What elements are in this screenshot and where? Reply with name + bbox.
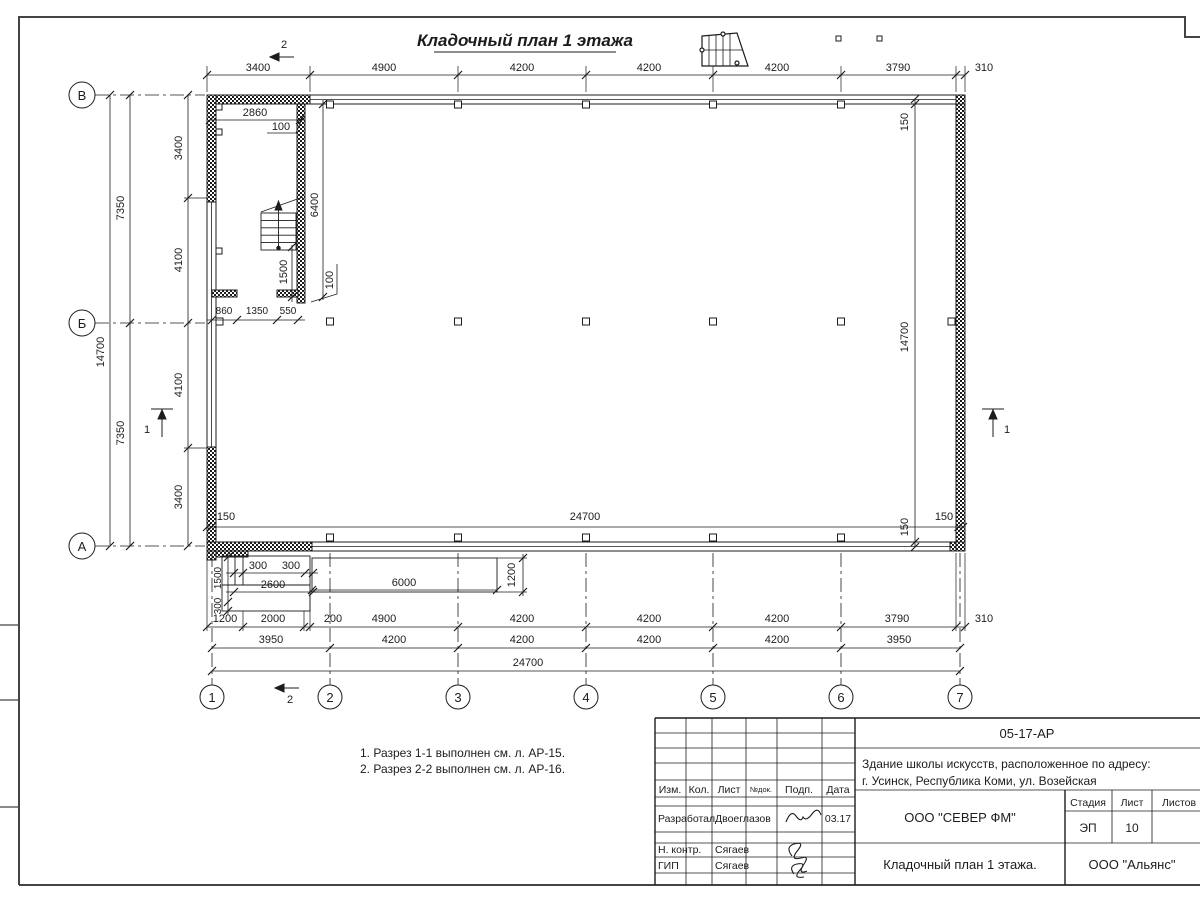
dim-label: 310 bbox=[975, 62, 993, 74]
title-block: 05-17-АР Здание школы искусств, располож… bbox=[655, 718, 1200, 885]
sheets-label: Листов bbox=[1162, 797, 1197, 809]
dim-label: 300 bbox=[213, 597, 224, 614]
col-ndok: №док. bbox=[750, 785, 772, 794]
col-kol: Кол. bbox=[689, 784, 710, 796]
axis-number: 5 bbox=[709, 690, 716, 705]
dimensions-stair: 2860 100 6400 1500 100 860 1350 550 bbox=[216, 107, 337, 317]
dim-label: 4200 bbox=[765, 62, 789, 74]
stage-label: Стадия bbox=[1070, 797, 1106, 809]
axis-circles-bottom: 1 2 3 4 5 6 7 bbox=[200, 685, 972, 709]
dimensions-right: 150 14700 150 bbox=[899, 113, 911, 536]
section-label: 1 bbox=[144, 424, 150, 436]
axis-circles-left: В Б А bbox=[69, 82, 95, 559]
project-line2: г. Усинск, Республика Коми, ул. Возейска… bbox=[862, 774, 1097, 788]
dim-label: 6400 bbox=[309, 193, 321, 217]
drawing-sheet: Кладочный план 1 этажа bbox=[0, 0, 1200, 900]
dim-label: 4200 bbox=[765, 634, 789, 646]
section-markers: 2 2 1 1 bbox=[144, 39, 1010, 706]
dim-label: 550 bbox=[280, 306, 297, 317]
dimensions-porch: 300 300 2600 1500 300 6000 1200 bbox=[213, 560, 518, 614]
col-list: Лист bbox=[718, 784, 741, 796]
col-data: Дата bbox=[826, 784, 849, 796]
dim-label: 4200 bbox=[637, 634, 661, 646]
axis-lines bbox=[95, 95, 960, 685]
dim-label: 200 bbox=[324, 613, 342, 625]
dim-label: 2600 bbox=[261, 579, 285, 591]
stamp-symbol bbox=[700, 32, 748, 66]
row-name: Сягаев bbox=[715, 860, 750, 872]
note-line: 1. Разрез 1-1 выполнен см. л. АР-15. bbox=[360, 746, 565, 760]
org2-name: ООО "Альянс" bbox=[1089, 857, 1176, 872]
dim-label: 2860 bbox=[243, 107, 267, 119]
signature bbox=[786, 810, 821, 822]
drawing-title: Кладочный план 1 этажа bbox=[417, 31, 633, 52]
dimension-lines bbox=[110, 75, 965, 671]
dim-label: 100 bbox=[272, 121, 290, 133]
row-date: 03.17 bbox=[825, 813, 851, 825]
axis-number: 2 bbox=[326, 690, 333, 705]
row-name: Сягаев bbox=[715, 844, 750, 856]
stage-value: ЭП bbox=[1079, 821, 1096, 835]
dim-label: 1500 bbox=[213, 566, 224, 589]
dim-label: 860 bbox=[216, 306, 233, 317]
page-title: Кладочный план 1 этажа bbox=[417, 31, 633, 50]
dim-label: 150 bbox=[899, 113, 911, 131]
dim-label: 3790 bbox=[886, 62, 910, 74]
axis-number: 4 bbox=[582, 690, 589, 705]
dim-label: 300 bbox=[249, 560, 267, 572]
dim-label: 4200 bbox=[510, 62, 534, 74]
dim-label: 3400 bbox=[173, 485, 185, 509]
dim-label: 4200 bbox=[510, 613, 534, 625]
dim-label: 14700 bbox=[95, 337, 107, 368]
building-walls bbox=[207, 95, 965, 560]
dim-label: 150 bbox=[217, 511, 235, 523]
dim-label: 3400 bbox=[246, 62, 270, 74]
notes: 1. Разрез 1-1 выполнен см. л. АР-15. 2. … bbox=[360, 746, 565, 776]
section-label: 2 bbox=[287, 694, 293, 706]
section-label: 2 bbox=[281, 39, 287, 51]
axis-letter: В bbox=[78, 88, 87, 103]
dim-label: 100 bbox=[324, 271, 336, 289]
dim-label: 3950 bbox=[887, 634, 911, 646]
dim-label: 4900 bbox=[372, 62, 396, 74]
marker-square-icon bbox=[836, 36, 841, 41]
dim-label: 24700 bbox=[570, 511, 601, 523]
row-name: Двоеглазов bbox=[715, 813, 771, 825]
axis-number: 3 bbox=[454, 690, 461, 705]
axis-number: 1 bbox=[208, 690, 215, 705]
dim-label: 4100 bbox=[173, 248, 185, 272]
dim-label: 4200 bbox=[382, 634, 406, 646]
col-podp: Подп. bbox=[785, 784, 813, 796]
dim-label: 1200 bbox=[506, 563, 518, 587]
dim-label: 1350 bbox=[246, 306, 269, 317]
dim-label: 3400 bbox=[173, 136, 185, 160]
dim-label: 4100 bbox=[173, 373, 185, 397]
axis-letter: А bbox=[78, 539, 87, 554]
dimensions-left: 14700 7350 7350 3400 4100 4100 3400 bbox=[95, 136, 185, 509]
axis-number: 7 bbox=[956, 690, 963, 705]
col-izm: Изм. bbox=[659, 784, 682, 796]
org-name: ООО "СЕВЕР ФМ" bbox=[904, 810, 1016, 825]
row-role: ГИП bbox=[658, 860, 679, 872]
project-line1: Здание школы искусств, расположенное по … bbox=[862, 757, 1151, 771]
dimensions-inner-bottom: 150 24700 150 bbox=[217, 511, 953, 523]
dim-label: 24700 bbox=[513, 657, 544, 669]
dim-label: 2000 bbox=[261, 613, 285, 625]
dimensions-top: 3400 4900 4200 4200 4200 3790 310 bbox=[246, 62, 993, 74]
dim-label: 150 bbox=[899, 518, 911, 536]
dim-label: 7350 bbox=[115, 196, 127, 220]
sheet-label: Лист bbox=[1121, 797, 1144, 809]
dim-label: 1500 bbox=[278, 260, 290, 284]
signature bbox=[792, 864, 804, 878]
row-role: Разработал bbox=[658, 813, 715, 825]
dim-label: 1200 bbox=[213, 613, 237, 625]
dim-label: 150 bbox=[935, 511, 953, 523]
dim-label: 300 bbox=[282, 560, 300, 572]
axis-number: 6 bbox=[837, 690, 844, 705]
masonry-plan-svg: Кладочный план 1 этажа bbox=[0, 0, 1200, 900]
note-line: 2. Разрез 2-2 выполнен см. л. АР-16. bbox=[360, 762, 565, 776]
dim-label: 3790 bbox=[885, 613, 909, 625]
dim-label: 4200 bbox=[637, 613, 661, 625]
row-role: Н. контр. bbox=[658, 844, 701, 856]
dim-label: 4200 bbox=[765, 613, 789, 625]
section-label: 1 bbox=[1004, 424, 1010, 436]
dim-label: 7350 bbox=[115, 421, 127, 445]
column-markers bbox=[216, 101, 955, 541]
dim-label: 6000 bbox=[392, 577, 416, 589]
dim-label: 3950 bbox=[259, 634, 283, 646]
sheet-number: 10 bbox=[1125, 821, 1139, 835]
axis-letter: Б bbox=[78, 316, 87, 331]
dim-label: 14700 bbox=[899, 322, 911, 353]
doc-number: 05-17-АР bbox=[1000, 726, 1055, 741]
sheet-title: Кладочный план 1 этажа. bbox=[883, 857, 1037, 872]
dim-label: 310 bbox=[975, 613, 993, 625]
dim-label: 4200 bbox=[637, 62, 661, 74]
dim-label: 4200 bbox=[510, 634, 534, 646]
dim-label: 4900 bbox=[372, 613, 396, 625]
marker-square-icon bbox=[877, 36, 882, 41]
